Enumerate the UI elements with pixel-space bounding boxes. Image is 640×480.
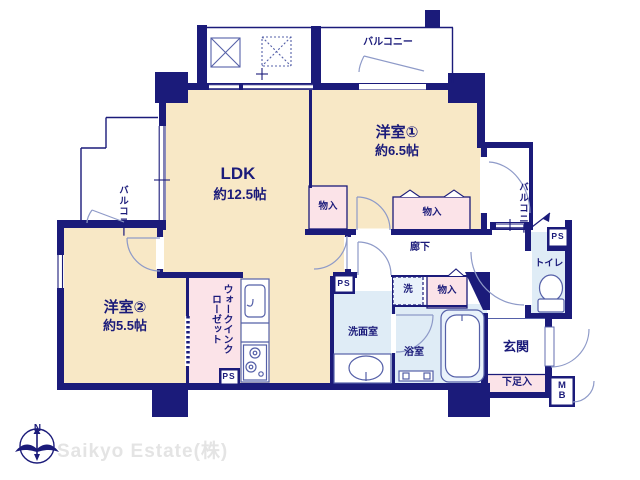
label-storage-1: 物入 xyxy=(308,202,348,213)
door-balcony-top xyxy=(359,56,424,72)
label-storage-3: 物入 xyxy=(427,286,467,297)
toilet-fixture xyxy=(538,275,564,312)
door-meter-box xyxy=(573,381,594,402)
label-laundry: 洗 xyxy=(397,285,419,296)
door-washroom xyxy=(358,242,391,275)
label-ps-2: PS xyxy=(335,279,353,289)
room-label-ldk: LDK xyxy=(193,164,283,184)
room-label-balcony-right: バルコニー xyxy=(513,162,527,254)
entrance-door-leaf xyxy=(545,327,554,366)
room-label-toilet: トイレ xyxy=(528,259,570,270)
compass-north-label: N xyxy=(31,423,44,435)
bathtub xyxy=(441,310,484,382)
label-storage-2: 物入 xyxy=(411,208,453,219)
door-entrance xyxy=(551,329,589,367)
room-label-washroom: 洗面室 xyxy=(337,327,389,339)
floorplan-drawing xyxy=(0,0,640,480)
room-label-balcony-left: バルコニー xyxy=(113,165,127,257)
floorplan: LDK 約12.5帖 洋室① 約6.5帖 洋室② 約5.5帖 バルコニー バルコ… xyxy=(0,0,640,480)
room-label-wic: ウォークインクローゼット xyxy=(194,281,232,357)
room-label-western2: 洋室② xyxy=(80,299,170,316)
room-label-entrance: 玄関 xyxy=(490,340,542,355)
closet-pole-mark-3 xyxy=(448,269,464,276)
label-ps-1: PS xyxy=(220,372,238,382)
room-label-bathroom: 浴室 xyxy=(393,347,435,359)
label-meter-box: MB xyxy=(555,381,569,401)
washbasin xyxy=(334,354,391,383)
room-area-western1: 約6.5帖 xyxy=(352,144,442,159)
room-area-western2: 約5.5帖 xyxy=(80,319,170,334)
room-label-western1: 洋室① xyxy=(352,124,442,141)
kitchen-unit xyxy=(241,279,269,382)
room-label-hallway: 廊下 xyxy=(400,242,440,254)
balcony-top-outline xyxy=(207,28,453,84)
shower-counter xyxy=(399,371,433,381)
label-ps-3: PS xyxy=(549,232,567,242)
room-area-ldk: 約12.5帖 xyxy=(193,187,287,203)
balcony-equipment-boxes xyxy=(211,37,291,67)
company-watermark: Saikyo Estate(株) xyxy=(57,441,232,463)
compass-tail xyxy=(34,454,40,461)
room-label-balcony-top: バルコニー xyxy=(348,37,428,49)
label-shoe-cabinet: 下足入 xyxy=(491,377,543,389)
